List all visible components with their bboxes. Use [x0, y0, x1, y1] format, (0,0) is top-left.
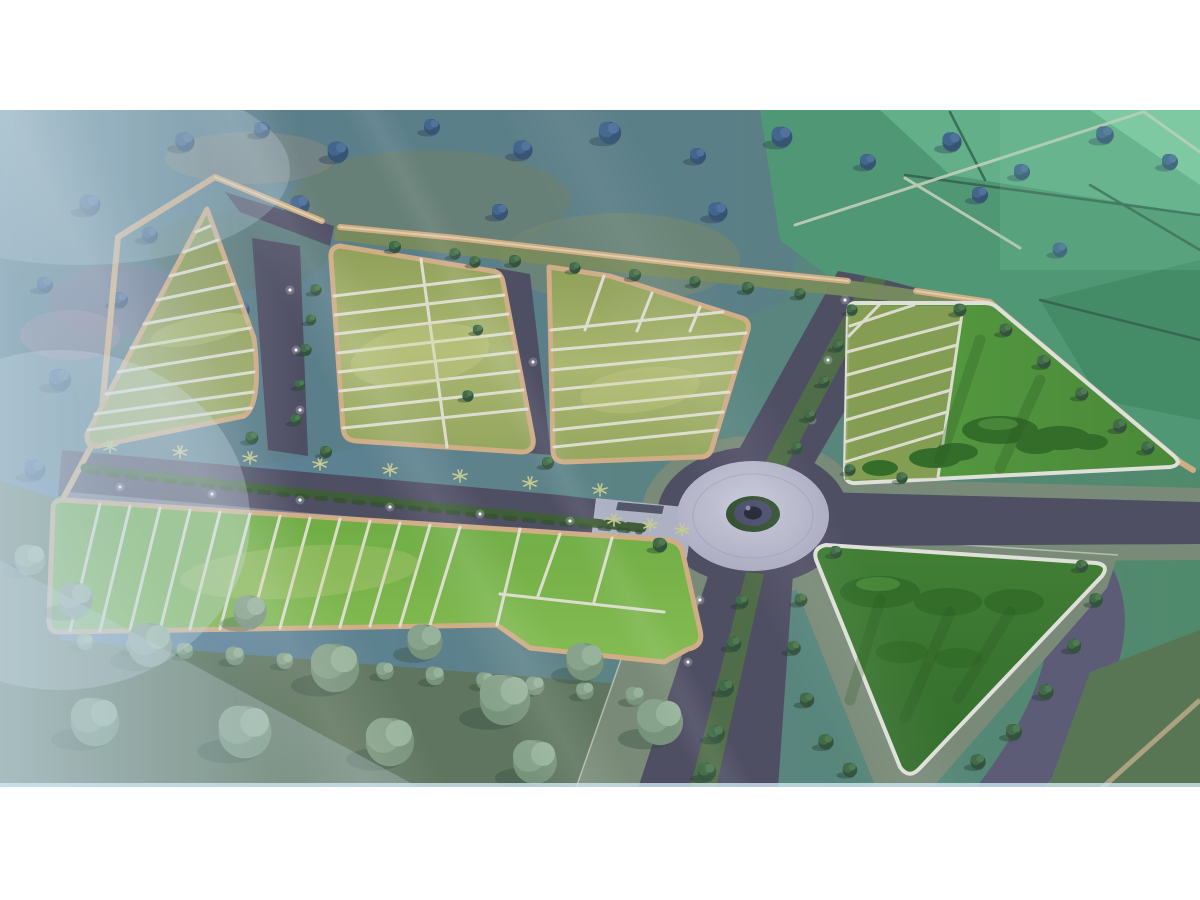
letterbox-bottom	[0, 787, 1200, 900]
haze-overlay	[0, 0, 1200, 900]
global-tint	[0, 110, 1200, 788]
screenshot-canvas	[0, 0, 1200, 900]
letterbox-top	[0, 0, 1200, 110]
render-band	[0, 0, 1200, 900]
aerial-render	[0, 0, 1200, 900]
band-bottom-edge	[0, 783, 1200, 787]
